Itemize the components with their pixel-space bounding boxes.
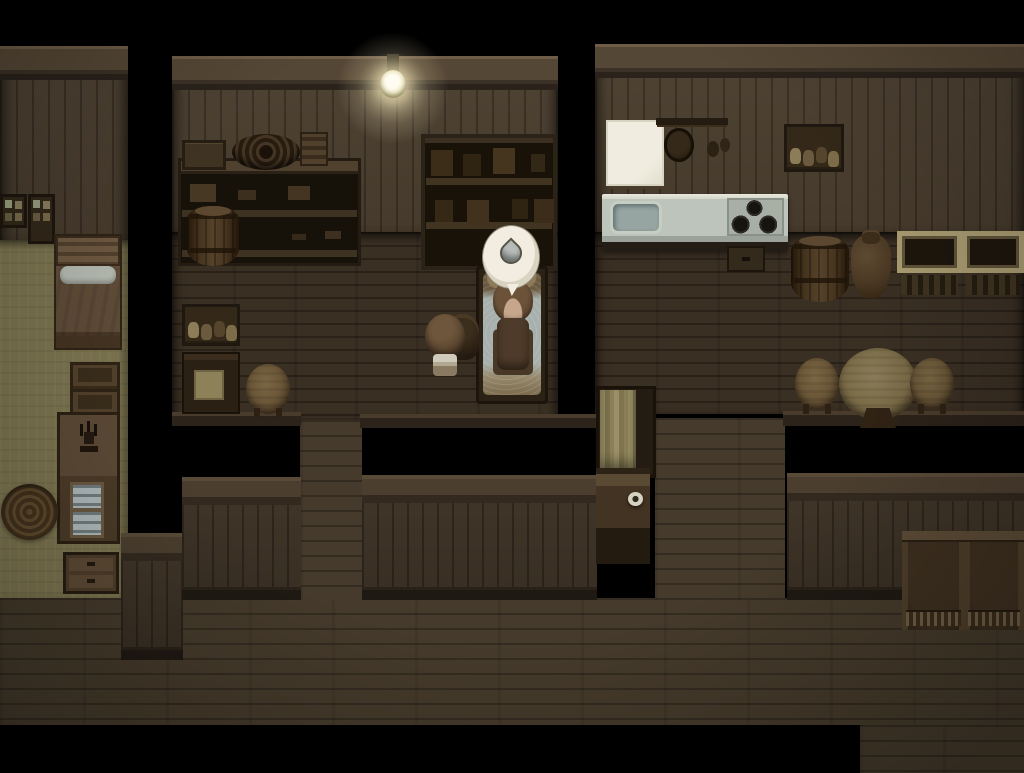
wall-box-shelf-b: [28, 194, 55, 244]
front-wall-middle-left: [182, 477, 301, 600]
round-stool-a: [795, 358, 839, 410]
right-doorway-floor: [655, 418, 785, 600]
front-wall-middle-right: [362, 475, 597, 600]
under-counter-cabinet: [727, 246, 765, 272]
middle-room-ledge-right: [360, 414, 600, 428]
jar-shelf-right: [784, 124, 844, 172]
pot-rack: [656, 112, 728, 174]
hanging-lamp: [370, 54, 416, 120]
box-on-shelf: [300, 132, 328, 166]
wall-box-shelf-a: [0, 194, 27, 228]
front-wall-left: [121, 533, 183, 660]
writing-desk: [182, 352, 240, 414]
crate-right: [962, 231, 1024, 297]
bedroom-bed: [54, 234, 122, 350]
crate-on-shelf: [182, 140, 226, 170]
sweat-drop-emote-bubble: [483, 226, 539, 288]
storage-barrel: [791, 236, 849, 302]
game-viewport[interactable]: [0, 0, 1024, 773]
curtain-cabinet: [596, 386, 656, 478]
drawer-chest: [63, 552, 119, 594]
sleeping-character[interactable]: [489, 280, 537, 380]
round-stool-b: [910, 358, 954, 410]
crate-left: [897, 231, 962, 297]
round-rug: [1, 484, 58, 540]
jar-shelf-left: [182, 304, 240, 346]
night-stand: [596, 468, 650, 564]
kitchen-counter: [602, 194, 788, 250]
bench-a: [70, 362, 120, 392]
round-stool-left: [246, 364, 290, 414]
cloth-chair-right: [964, 531, 1024, 630]
middle-doorway-floor: [300, 420, 362, 600]
small-barrel: [187, 206, 239, 266]
rope-coil: [232, 134, 300, 170]
clay-jug: [851, 234, 891, 298]
cloth-chair-left: [902, 531, 965, 630]
hallway-floor-extension: [860, 725, 1024, 773]
child-character[interactable]: [423, 306, 468, 378]
round-table: [839, 348, 917, 420]
display-cabinet: [57, 412, 120, 544]
